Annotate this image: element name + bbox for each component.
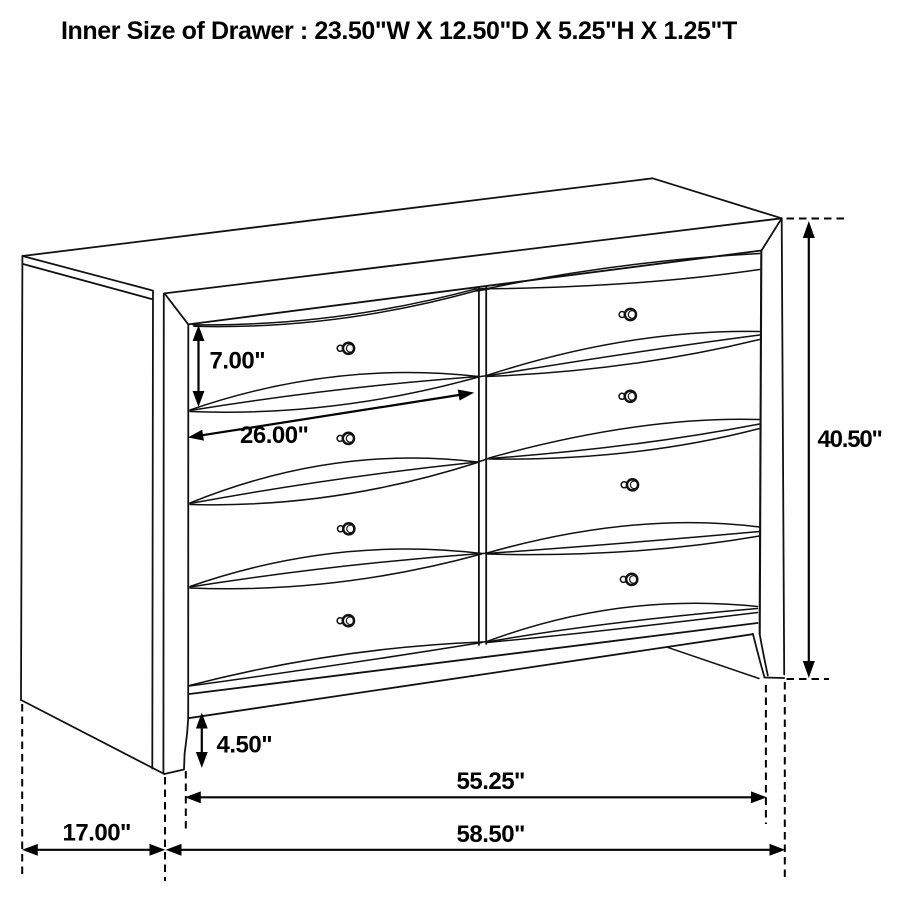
svg-text:58.50": 58.50" <box>457 821 525 848</box>
svg-text:26.00": 26.00" <box>240 422 308 449</box>
svg-text:40.50": 40.50" <box>818 426 882 453</box>
svg-text:4.50": 4.50" <box>217 732 273 759</box>
svg-text:7.00": 7.00" <box>210 348 266 375</box>
svg-text:17.00": 17.00" <box>63 820 131 847</box>
svg-text:Inner Size of Drawer : 23.50"W: Inner Size of Drawer : 23.50"W X 12.50"D… <box>61 17 737 45</box>
svg-text:55.25": 55.25" <box>457 768 525 795</box>
